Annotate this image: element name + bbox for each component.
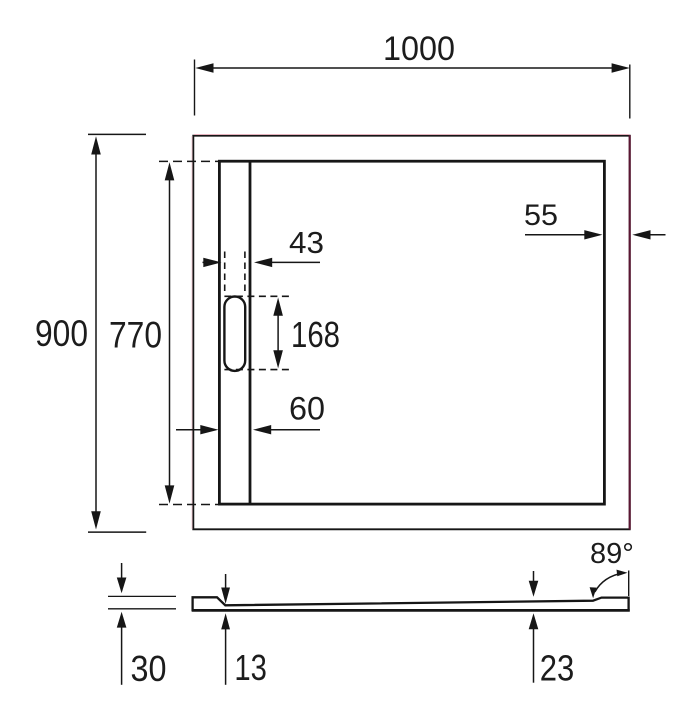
svg-text:1000: 1000 bbox=[383, 30, 455, 68]
svg-text:23: 23 bbox=[540, 648, 575, 689]
svg-text:30: 30 bbox=[131, 648, 167, 689]
svg-text:55: 55 bbox=[524, 199, 558, 232]
svg-text:900: 900 bbox=[35, 313, 88, 354]
svg-text:60: 60 bbox=[289, 391, 325, 427]
svg-text:13: 13 bbox=[234, 647, 267, 688]
svg-text:168: 168 bbox=[291, 314, 340, 355]
svg-text:770: 770 bbox=[109, 315, 162, 356]
svg-text:43: 43 bbox=[289, 225, 324, 260]
svg-text:89°: 89° bbox=[590, 538, 634, 570]
